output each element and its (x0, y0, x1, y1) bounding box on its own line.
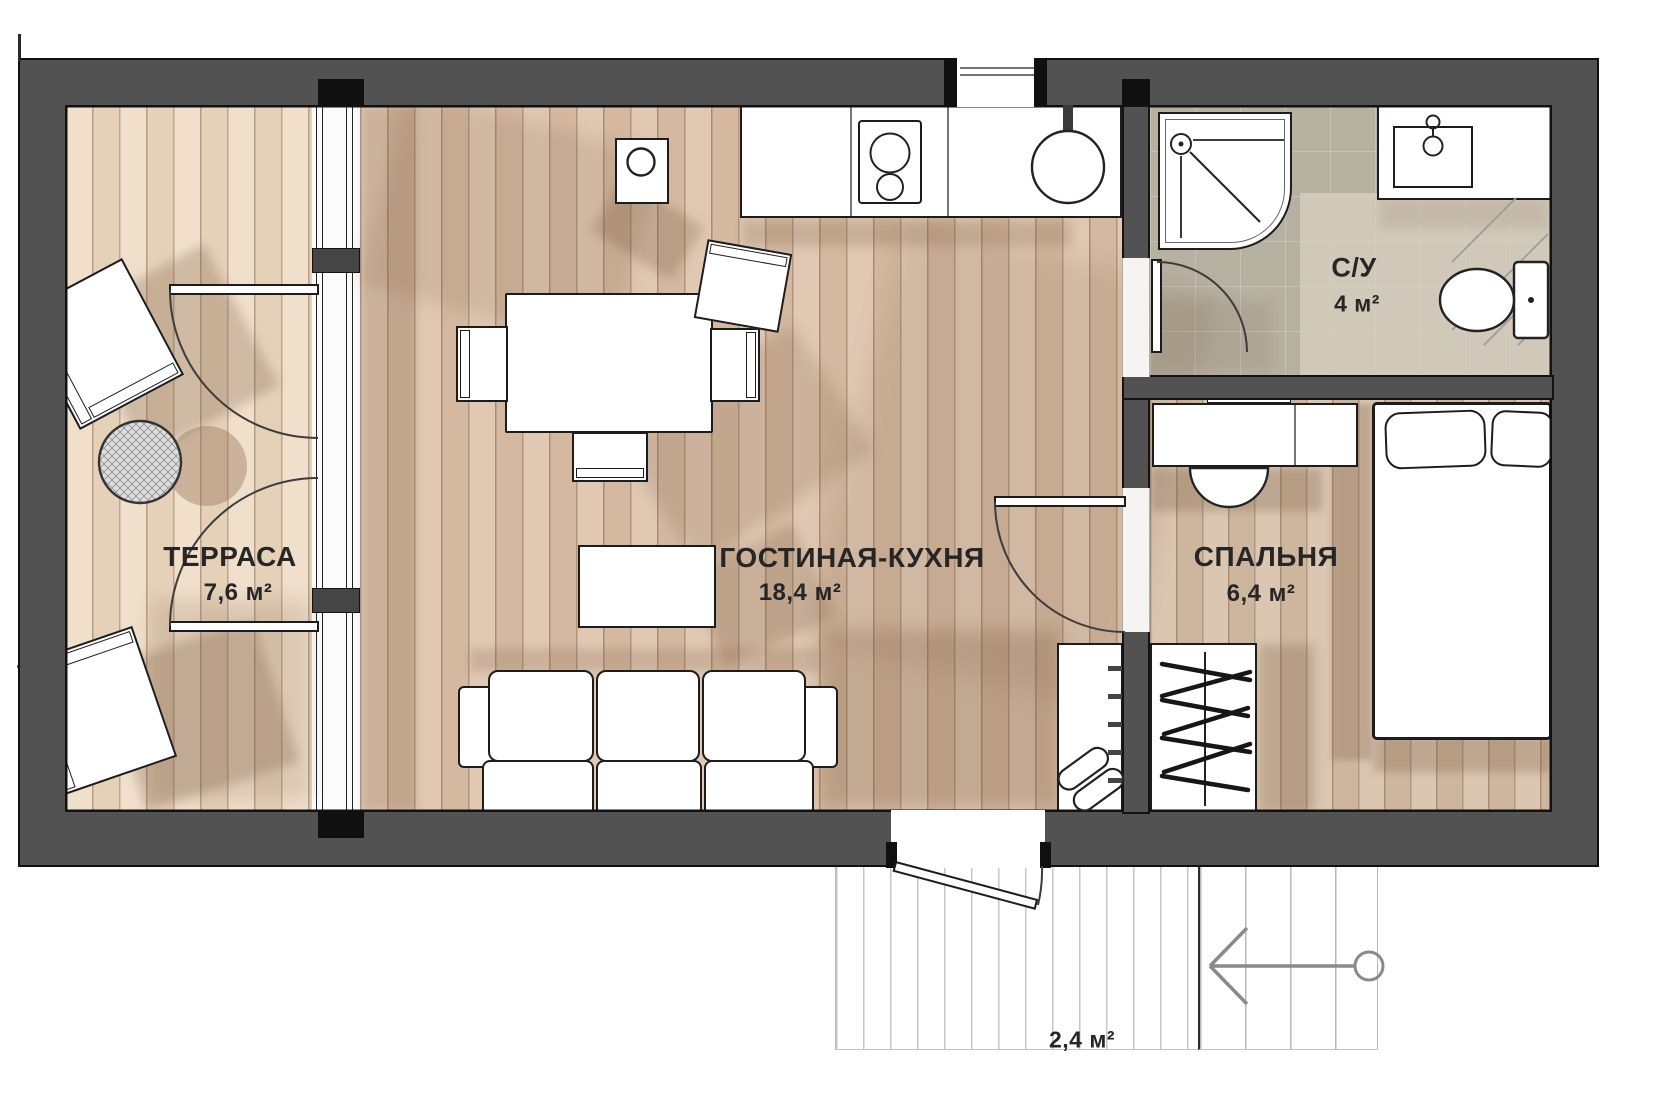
window-post (1034, 58, 1047, 107)
wall-closet-post (1122, 630, 1150, 814)
entry-door-opening (891, 810, 1045, 868)
wall-accent (318, 812, 364, 838)
porch-steps-left (835, 865, 1198, 1050)
wall-living-bedroom (1122, 398, 1150, 490)
wall-bathroom-bedroom (1122, 375, 1554, 400)
wall-accent (318, 79, 364, 105)
bathroom-doorway (1122, 258, 1150, 377)
floorplan-canvas: ТЕРРАСА 7,6 м² ГОСТИНАЯ-КУХНЯ 18,4 м² СП… (0, 0, 1680, 1120)
wall-tick (18, 34, 21, 62)
room-area-living-kitchen: 18,4 м² (759, 579, 842, 607)
room-label-terrace: ТЕРРАСА (163, 541, 296, 573)
door-jamb (886, 842, 897, 868)
glass-partition-post (312, 588, 360, 613)
bedroom-doorway (1122, 488, 1150, 632)
door-jamb (1040, 842, 1051, 868)
glass-partition-post (312, 248, 360, 273)
room-label-bathroom: С/У (1331, 253, 1376, 284)
kitchen-window-opening (946, 58, 1047, 107)
room-area-bedroom: 6,4 м² (1227, 580, 1296, 608)
room-label-living-kitchen: ГОСТИНАЯ-КУХНЯ (719, 542, 984, 574)
porch-steps-right (1198, 865, 1378, 1050)
porch-area-label: 2,4 м² (1049, 1027, 1115, 1054)
wall-bathroom-left (1122, 105, 1150, 260)
room-area-bathroom: 4 м² (1334, 291, 1380, 318)
window-post (944, 58, 957, 107)
exterior-walls (20, 60, 1597, 865)
wall-accent (1122, 79, 1150, 105)
room-area-terrace: 7,6 м² (204, 579, 273, 607)
room-label-bedroom: СПАЛЬНЯ (1194, 541, 1339, 573)
